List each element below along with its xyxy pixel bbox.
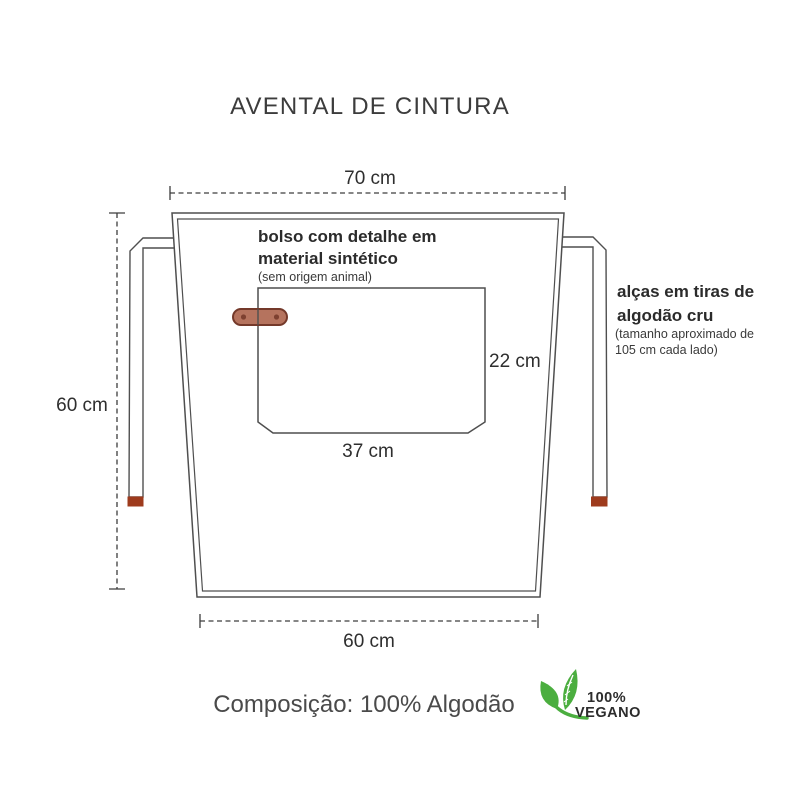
dimension-bottom-width-ticks bbox=[200, 614, 538, 628]
tag-rivet-right bbox=[274, 314, 279, 319]
vegan-badge: 100% VEGANO bbox=[540, 669, 641, 721]
pocket-note-sub: (sem origem animal) bbox=[258, 270, 372, 284]
dimension-side-height: 60 cm bbox=[56, 213, 125, 589]
dimension-side-height-label: 60 cm bbox=[56, 395, 108, 416]
pocket-note-line1: bolso com detalhe em bbox=[258, 227, 437, 246]
strap-note-sub2: 105 cm cada lado) bbox=[615, 343, 718, 357]
pocket-width-label: 37 cm bbox=[342, 441, 394, 462]
strap-note-sub1: (tamanho aproximado de bbox=[615, 327, 754, 341]
strap-note-line2: algodão cru bbox=[617, 306, 713, 325]
diagram-canvas: AVENTAL DE CINTURA 70 cm 60 cm bbox=[0, 0, 800, 800]
apron-size-diagram: AVENTAL DE CINTURA 70 cm 60 cm bbox=[0, 0, 800, 800]
dimension-bottom-width: 60 cm bbox=[200, 614, 538, 652]
left-strap-tip bbox=[128, 497, 144, 507]
strap-note: alças em tiras de algodão cru (tamanho a… bbox=[615, 282, 754, 357]
pocket-outline bbox=[258, 288, 485, 433]
right-strap-tip bbox=[591, 497, 608, 507]
left-strap-shape bbox=[129, 238, 180, 497]
page-title: AVENTAL DE CINTURA bbox=[230, 93, 510, 120]
pocket-note-line2: material sintético bbox=[258, 249, 398, 268]
strap-note-line1: alças em tiras de bbox=[617, 282, 754, 301]
tag-rivet-left bbox=[241, 314, 246, 319]
leaf-left bbox=[540, 681, 558, 709]
composition-text: Composição: 100% Algodão bbox=[213, 691, 515, 718]
dimension-bottom-width-label: 60 cm bbox=[343, 631, 395, 652]
pocket-height-label: 22 cm bbox=[489, 351, 541, 372]
vegan-word-label: VEGANO bbox=[575, 705, 641, 721]
dimension-top-width: 70 cm bbox=[170, 168, 565, 200]
dimension-top-width-label: 70 cm bbox=[344, 168, 396, 189]
vegan-percent-label: 100% bbox=[587, 690, 626, 706]
left-strap bbox=[128, 238, 181, 507]
pocket-tag bbox=[233, 309, 287, 325]
leaf-right bbox=[563, 669, 578, 710]
